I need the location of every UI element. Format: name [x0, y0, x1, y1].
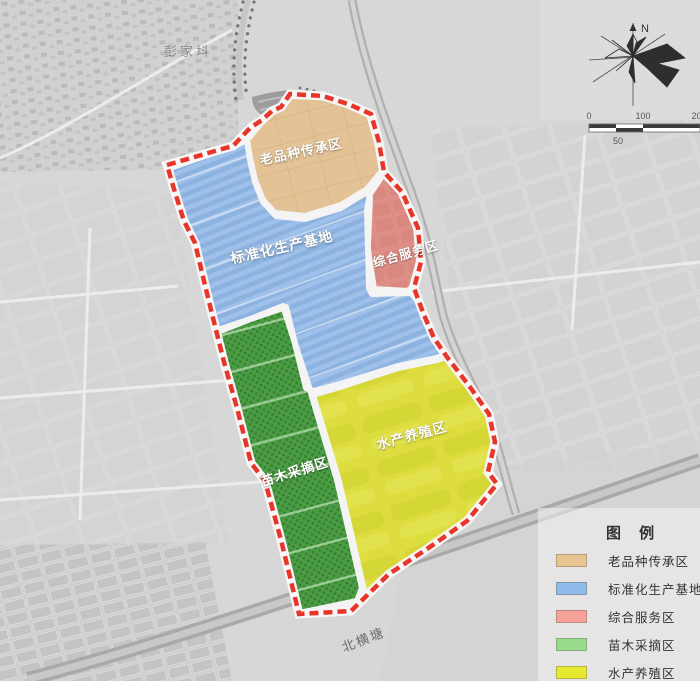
legend-panel: 图 例 老品种传承区标准化生产基地综合服务区苗木采摘区水产养殖区 [538, 508, 700, 681]
legend-label: 苗木采摘区 [608, 635, 676, 654]
legend-item: 水产养殖区 [556, 665, 700, 679]
legend-item: 苗木采摘区 [556, 637, 700, 651]
legend-swatch [556, 582, 587, 595]
legend-swatch [556, 638, 587, 651]
legend-item: 老品种传承区 [556, 553, 700, 567]
legend-title: 图 例 [606, 522, 700, 543]
scale-tick-0: 0 [586, 111, 591, 121]
scale-tick-200: 200 [691, 111, 700, 121]
planning-map: 彭家㘰 老品种传承区 标准化生产基地 综合服务区 苗木采摘区 水产养殖区 北横塘… [0, 0, 700, 681]
legend-item: 标准化生产基地 [556, 581, 700, 595]
legend-swatch [556, 610, 587, 623]
village-label: 彭家㘰 [164, 44, 212, 59]
legend-swatch [556, 554, 587, 567]
compass-north-label: N [641, 23, 649, 35]
legend-label: 综合服务区 [608, 607, 676, 626]
legend-label: 标准化生产基地 [608, 579, 700, 598]
legend-label: 水产养殖区 [608, 663, 676, 681]
legend-swatch [556, 666, 587, 679]
scale-tick-50: 50 [613, 136, 623, 146]
legend-item: 综合服务区 [556, 609, 700, 623]
legend-items: 老品种传承区标准化生产基地综合服务区苗木采摘区水产养殖区 [556, 553, 700, 679]
legend-label: 老品种传承区 [608, 551, 689, 570]
scale-tick-100: 100 [635, 111, 650, 121]
